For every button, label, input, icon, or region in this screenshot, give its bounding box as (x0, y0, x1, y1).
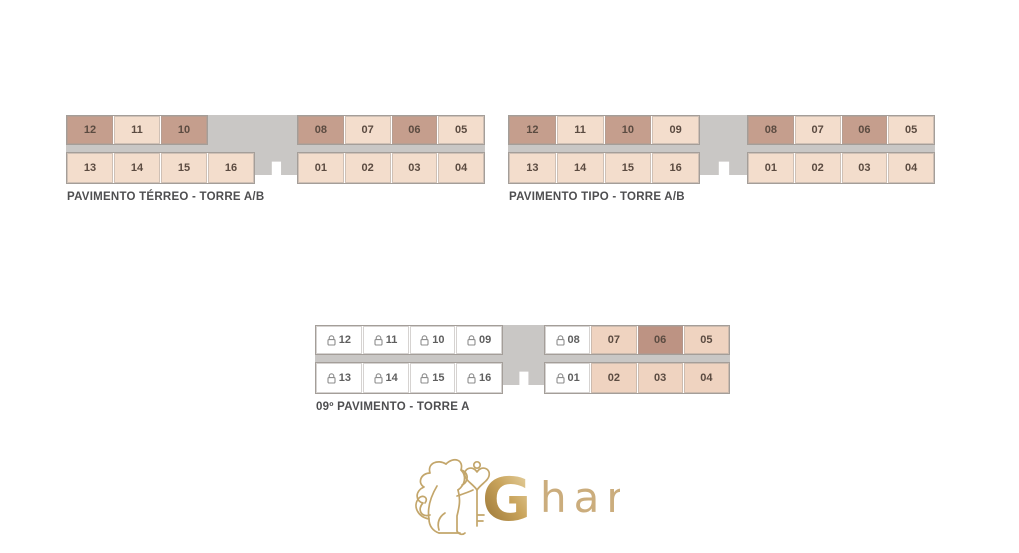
lock-icon (467, 335, 476, 346)
unit-block-bottom-right: 01 02 03 04 (544, 362, 730, 394)
availability-map: 12 11 10 08 (0, 0, 1019, 553)
unit-cell[interactable]: 05 (888, 116, 934, 144)
unit-number: 04 (905, 162, 917, 174)
unit-number: 04 (455, 162, 467, 174)
unit-number: 02 (812, 162, 824, 174)
unit-cell[interactable]: 12 (509, 116, 556, 144)
unit-number: 04 (700, 372, 712, 384)
unit-cell[interactable]: 05 (438, 116, 484, 144)
unit-cell[interactable]: 04 (684, 363, 729, 393)
unit-number: 03 (858, 162, 870, 174)
unit-block-top-left: 12 11 10 09 (508, 115, 700, 145)
unit-number: 14 (386, 372, 398, 384)
lock-icon (556, 373, 565, 384)
plan-title: PAVIMENTO TÉRREO - TORRE A/B (67, 191, 264, 203)
unit-cell[interactable]: 01 (748, 153, 794, 183)
unit-block-top-left: 12 11 10 09 (315, 325, 503, 355)
unit-block-bottom-left: 13 14 15 16 (66, 152, 255, 184)
unit-number: 10 (622, 124, 634, 136)
unit-cell[interactable]: 15 (605, 153, 652, 183)
unit-cell[interactable]: 06 (842, 116, 888, 144)
brand-initial: G (482, 465, 531, 535)
unit-number: 08 (765, 124, 777, 136)
unit-cell[interactable]: 12 (67, 116, 113, 144)
unit-block-top-right: 08 07 06 05 (544, 325, 730, 355)
plan-title: 09º PAVIMENTO - TORRE A (316, 401, 470, 413)
unit-cell[interactable]: 10 (410, 326, 456, 354)
unit-cell[interactable]: 13 (509, 153, 556, 183)
unit-cell[interactable]: 06 (638, 326, 683, 354)
unit-number: 12 (339, 334, 351, 346)
unit-cell[interactable]: 13 (67, 153, 113, 183)
unit-number: 03 (654, 372, 666, 384)
core-area (700, 115, 747, 145)
unit-cell[interactable]: 07 (345, 116, 391, 144)
unit-cell[interactable]: 16 (456, 363, 502, 393)
unit-cell[interactable]: 06 (392, 116, 438, 144)
corridor-strip (66, 145, 485, 152)
unit-number: 10 (178, 124, 190, 136)
unit-cell[interactable]: 13 (316, 363, 362, 393)
unit-cell[interactable]: 07 (795, 116, 841, 144)
unit-block-top-right: 08 07 06 05 (747, 115, 935, 145)
unit-number: 02 (608, 372, 620, 384)
unit-number: 14 (131, 162, 143, 174)
unit-cell[interactable]: 03 (638, 363, 683, 393)
unit-number: 06 (408, 124, 420, 136)
lock-icon (467, 373, 476, 384)
lock-icon (327, 335, 336, 346)
unit-number: 02 (362, 162, 374, 174)
lock-icon (327, 373, 336, 384)
unit-cell[interactable]: 09 (652, 116, 699, 144)
unit-block-top-left: 12 11 10 (66, 115, 208, 145)
unit-number: 07 (608, 334, 620, 346)
unit-cell[interactable]: 01 (298, 153, 344, 183)
unit-cell[interactable]: 02 (795, 153, 841, 183)
core-area (208, 115, 297, 145)
unit-number: 12 (526, 124, 538, 136)
unit-number: 08 (315, 124, 327, 136)
unit-cell[interactable]: 14 (114, 153, 160, 183)
unit-cell[interactable]: 12 (316, 326, 362, 354)
unit-number: 12 (84, 124, 96, 136)
unit-number: 06 (858, 124, 870, 136)
core-area-notched (700, 152, 747, 175)
plan-title: PAVIMENTO TIPO - TORRE A/B (509, 191, 685, 203)
unit-block-top-right: 08 07 06 05 (297, 115, 485, 145)
unit-number: 07 (812, 124, 824, 136)
unit-cell[interactable]: 04 (888, 153, 934, 183)
unit-number: 16 (225, 162, 237, 174)
unit-number: 01 (315, 162, 327, 174)
unit-number: 10 (432, 334, 444, 346)
unit-number: 09 (670, 124, 682, 136)
unit-number: 13 (526, 162, 538, 174)
lock-icon (420, 373, 429, 384)
core-area-notched (503, 362, 544, 385)
unit-cell[interactable]: 02 (345, 153, 391, 183)
unit-number: 03 (408, 162, 420, 174)
unit-number: 05 (700, 334, 712, 346)
unit-number: 11 (574, 124, 586, 136)
unit-cell[interactable]: 14 (363, 363, 409, 393)
unit-cell[interactable]: 10 (605, 116, 652, 144)
unit-cell[interactable]: 15 (410, 363, 456, 393)
unit-cell[interactable]: 08 (748, 116, 794, 144)
unit-cell[interactable]: 03 (392, 153, 438, 183)
unit-number: 16 (479, 372, 491, 384)
unit-cell[interactable]: 08 (545, 326, 590, 354)
lock-icon (556, 335, 565, 346)
unit-number: 13 (84, 162, 96, 174)
unit-cell[interactable]: 11 (363, 326, 409, 354)
lock-icon (420, 335, 429, 346)
unit-block-bottom-right: 01 02 03 04 (297, 152, 485, 184)
unit-cell[interactable]: 11 (114, 116, 160, 144)
unit-cell[interactable]: 10 (161, 116, 207, 144)
unit-cell[interactable]: 03 (842, 153, 888, 183)
unit-block-bottom-left: 13 14 15 16 (508, 152, 700, 184)
unit-cell[interactable]: 16 (208, 153, 254, 183)
unit-cell[interactable]: 15 (161, 153, 207, 183)
brand-logo: G har (400, 450, 620, 548)
unit-cell[interactable]: 05 (684, 326, 729, 354)
unit-number: 08 (568, 334, 580, 346)
corridor-strip (508, 145, 935, 152)
lion-with-key-icon (416, 460, 489, 535)
unit-number: 09 (479, 334, 491, 346)
unit-number: 05 (455, 124, 467, 136)
unit-cell[interactable]: 11 (557, 116, 604, 144)
core-area-notched (255, 152, 297, 175)
unit-number: 11 (131, 124, 143, 136)
unit-block-bottom-right: 01 02 03 04 (747, 152, 935, 184)
unit-number: 15 (178, 162, 190, 174)
unit-number: 01 (568, 372, 580, 384)
corridor-strip (315, 355, 730, 362)
unit-block-bottom-left: 13 14 15 16 (315, 362, 503, 394)
unit-number: 15 (432, 372, 444, 384)
core-area (503, 325, 544, 355)
unit-number: 05 (905, 124, 917, 136)
unit-number: 06 (654, 334, 666, 346)
lock-icon (374, 335, 383, 346)
floor-plan-tipo: 12 11 10 09 (508, 115, 935, 183)
brand-rest: har (540, 473, 620, 522)
unit-number: 13 (339, 372, 351, 384)
floor-plan-nono: 12 11 10 09 (315, 325, 730, 394)
unit-cell[interactable]: 08 (298, 116, 344, 144)
unit-cell[interactable]: 02 (591, 363, 636, 393)
floor-plan-terreo: 12 11 10 08 (66, 115, 485, 183)
unit-cell[interactable]: 07 (591, 326, 636, 354)
lock-icon (374, 373, 383, 384)
unit-cell[interactable]: 14 (557, 153, 604, 183)
unit-number: 16 (670, 162, 682, 174)
unit-number: 14 (574, 162, 586, 174)
unit-number: 15 (622, 162, 634, 174)
unit-cell[interactable]: 01 (545, 363, 590, 393)
unit-cell[interactable]: 09 (456, 326, 502, 354)
unit-cell[interactable]: 04 (438, 153, 484, 183)
unit-number: 07 (362, 124, 374, 136)
unit-number: 01 (765, 162, 777, 174)
unit-number: 11 (386, 334, 398, 346)
unit-cell[interactable]: 16 (652, 153, 699, 183)
